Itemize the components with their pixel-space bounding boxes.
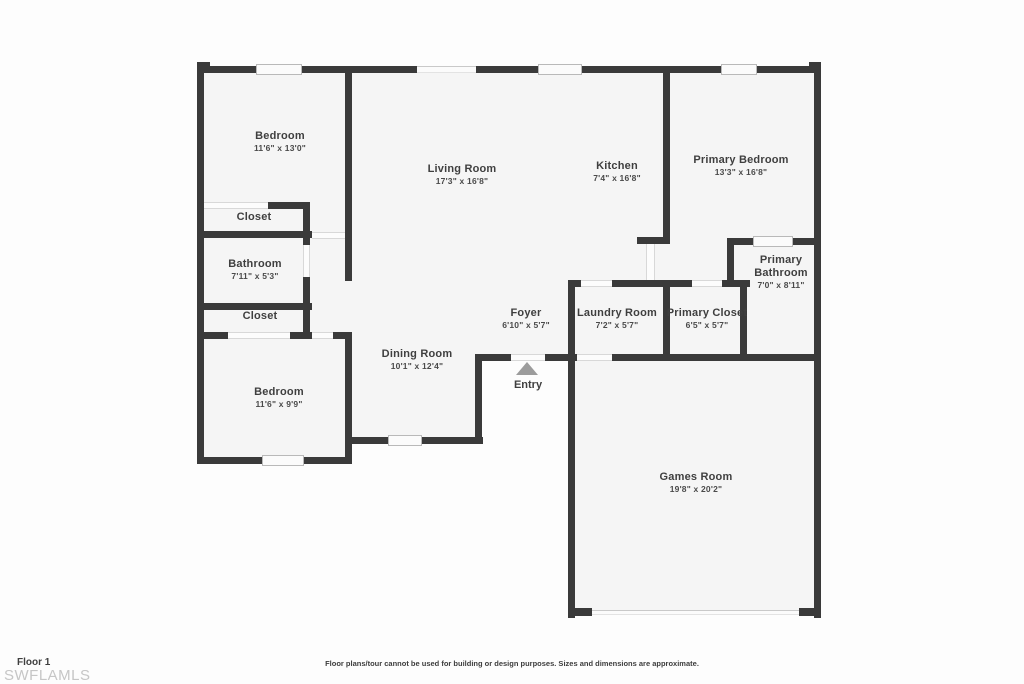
room-label-primary-bathroom: Primary Bathroom 7'0" x 8'11" (738, 254, 824, 291)
room-name: Primary Bathroom (738, 254, 824, 280)
room-label-laundry-room: Laundry Room 7'2" x 5'7" (577, 307, 657, 331)
wall-segment (197, 66, 204, 464)
room-dims: 7'4" x 16'8" (593, 173, 641, 184)
window (256, 64, 302, 75)
window (417, 66, 476, 73)
wall-segment (727, 238, 734, 287)
door-opening (204, 202, 268, 209)
room-label-bedroom-2: Bedroom 11'6" x 9'9" (254, 386, 304, 410)
room-name: Foyer (502, 307, 550, 320)
room-dims: 10'1" x 12'4" (382, 361, 453, 372)
wall-segment (420, 437, 483, 444)
wall-segment (580, 66, 723, 73)
wall-segment (479, 354, 511, 361)
door-opening (581, 280, 612, 287)
wall-segment (663, 66, 670, 244)
window (388, 435, 422, 446)
room-name: Living Room (428, 163, 497, 176)
window (721, 64, 757, 75)
wall-segment (303, 202, 310, 245)
entry-arrow-icon (516, 362, 538, 375)
wall-segment (345, 332, 352, 464)
door-opening (511, 354, 545, 361)
mls-watermark: SWFLAMLS (4, 667, 91, 684)
room-name: Primary Bedroom (693, 154, 788, 167)
room-name: Closet (243, 310, 278, 323)
room-dims: 7'2" x 5'7" (577, 320, 657, 331)
room-label-bedroom-1: Bedroom 11'6" x 13'0" (254, 130, 306, 154)
wall-segment (814, 66, 821, 618)
door-opening (692, 280, 722, 287)
wall-segment (612, 354, 821, 361)
room-name: Bedroom (254, 130, 306, 143)
room-label-foyer: Foyer 6'10" x 5'7" (502, 307, 550, 331)
wall-segment (568, 280, 575, 618)
door-opening (312, 332, 333, 339)
room-dims: 6'10" x 5'7" (502, 320, 550, 331)
room-label-closet-2: Closet (243, 310, 278, 323)
disclaimer-text: Floor plans/tour cannot be used for buil… (325, 659, 699, 668)
window (592, 610, 799, 615)
room-name: Laundry Room (577, 307, 657, 320)
room-name: Games Room (660, 471, 733, 484)
room-label-dining-room: Dining Room 10'1" x 12'4" (382, 348, 453, 372)
room-name: Dining Room (382, 348, 453, 361)
window (753, 236, 793, 247)
room-label-kitchen: Kitchen 7'4" x 16'8" (593, 160, 641, 184)
room-name: Closet (237, 211, 272, 224)
wall-segment (345, 437, 392, 444)
room-dims: 17'3" x 16'8" (428, 176, 497, 187)
room-label-games-room: Games Room 19'8" x 20'2" (660, 471, 733, 495)
wall-segment (612, 280, 692, 287)
room-name: Bathroom (228, 258, 282, 271)
room-label-living-room: Living Room 17'3" x 16'8" (428, 163, 497, 187)
wall-segment (345, 66, 352, 239)
door-opening (303, 245, 310, 277)
room-name: Kitchen (593, 160, 641, 173)
wall-segment (476, 66, 540, 73)
wall-segment (300, 66, 417, 73)
floor-plan: Bedroom 11'6" x 13'0" Closet Bathroom 7'… (0, 0, 1024, 682)
wall-segment (197, 66, 258, 73)
wall-segment (475, 354, 482, 444)
door-opening (646, 244, 655, 280)
door-opening (228, 332, 290, 339)
room-dims: 7'0" x 8'11" (738, 280, 824, 291)
wall-segment (345, 239, 352, 281)
room-dims: 11'6" x 9'9" (254, 399, 304, 410)
room-label-bathroom: Bathroom 7'11" x 5'3" (228, 258, 282, 282)
room-name: Bedroom (254, 386, 304, 399)
room-dims: 19'8" x 20'2" (660, 484, 733, 495)
room-dims: 7'11" x 5'3" (228, 271, 282, 282)
wall-segment (197, 457, 266, 464)
window (262, 455, 304, 466)
wall-segment (197, 303, 312, 310)
entry-label: Entry (514, 379, 542, 391)
room-label-primary-bedroom: Primary Bedroom 13'3" x 16'8" (693, 154, 788, 178)
room-name: Primary Closet (667, 307, 747, 320)
wall-segment (303, 277, 310, 339)
room-label-primary-closet: Primary Closet 6'5" x 5'7" (667, 307, 747, 331)
window (538, 64, 582, 75)
room-dims: 6'5" x 5'7" (667, 320, 747, 331)
door-opening (312, 232, 345, 239)
room-dims: 11'6" x 13'0" (254, 143, 306, 154)
room-label-closet-1: Closet (237, 211, 272, 224)
room-dims: 13'3" x 16'8" (693, 167, 788, 178)
door-opening (577, 354, 612, 361)
wall-segment (755, 66, 821, 73)
wall-segment (197, 231, 312, 238)
